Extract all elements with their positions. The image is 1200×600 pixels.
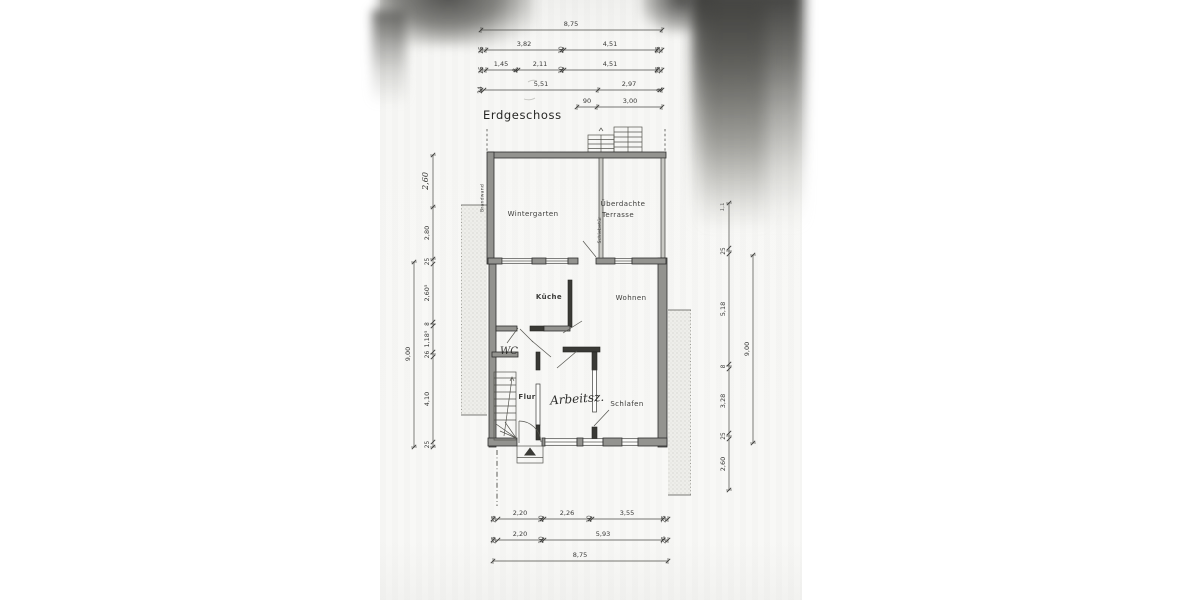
wall-bottom: [638, 438, 667, 446]
dim-label: 2,20: [513, 509, 527, 517]
room-label-wintergarten: Wintergarten: [508, 210, 559, 218]
dim-chain-top-row4: 24 5,51 2,97 9: [478, 80, 664, 94]
wall-bottom: [603, 438, 622, 446]
dim-label: 2,97: [622, 80, 636, 88]
stair-walk-line: [504, 378, 512, 436]
wall-mid-segment: [568, 258, 578, 264]
dim-label: 2,60: [421, 172, 430, 191]
wall-flur: [536, 425, 540, 440]
wall-label-schiebetuer: Schiebetür: [597, 217, 603, 244]
dim-label: 3,00: [623, 97, 637, 105]
scanned-floor-plan-document: 8,75 25 3,82 10 4,51 25 25 1,45 8 2,11 1…: [0, 0, 1200, 600]
room-label-wohnen: Wohnen: [616, 294, 647, 302]
dim-label: 1,1: [720, 202, 726, 212]
dim-chain-left-inner: 2,60 2,80 25 2,60⁵ 8 1,18⁵ 26 4,10 25: [421, 153, 436, 449]
wall-right-terrasse: [661, 158, 665, 258]
dim-label: 10: [559, 66, 565, 74]
wall-bottom: [488, 438, 517, 446]
dim-label: 25: [721, 432, 727, 440]
dim-label: 25: [425, 441, 431, 449]
dim-label: 4,51: [603, 40, 617, 48]
room-label-terrasse-2: Terrasse: [601, 211, 634, 219]
wall-mid-segment: [632, 258, 666, 264]
staircase: [494, 372, 516, 440]
neighbor-wall-strip-right: [668, 310, 691, 495]
dim-chain-top-row5: 90 3,00: [575, 97, 664, 110]
stair-direction-arrow: [599, 128, 603, 131]
dim-label: 2,20: [513, 530, 527, 538]
dim-chain-bottom-total: 8,75: [491, 551, 670, 564]
dim-label: 25: [721, 247, 727, 255]
dim-chain-right-outer: 9,00: [743, 253, 756, 445]
dim-label: 2,26: [560, 509, 574, 517]
dim-label: 10: [539, 515, 545, 523]
dim-label: 9,00: [743, 342, 751, 356]
neighbor-wall-strip-left: [461, 205, 487, 415]
dim-label: 2,11: [533, 60, 547, 68]
floor-plan-drawing: 8,75 25 3,82 10 4,51 25 25 1,45 8 2,11 1…: [0, 0, 1200, 600]
dim-label: 8: [513, 68, 519, 72]
dim-label: 8,75: [564, 20, 578, 28]
wall-kueche-wohnen: [568, 280, 572, 327]
dim-chain-right-inner: 1,1 25 5,18 8 3,28 25 2,60: [719, 201, 732, 492]
wall-left-brandwand: [487, 152, 494, 264]
wall-flur: [536, 384, 540, 425]
dim-label: 24: [478, 86, 484, 94]
dim-label: 2,60: [719, 457, 727, 471]
dim-chain-bottom-row1: 25 2,20 10 2,26 10 3,55 25: [491, 509, 670, 523]
dim-label: 8: [721, 364, 727, 368]
dim-label: 3,28: [719, 394, 727, 408]
dim-label: 26: [662, 536, 668, 544]
dim-label: 10: [559, 46, 565, 54]
entrance-arrow-icon: [524, 448, 536, 456]
dim-label: 1,45: [494, 60, 508, 68]
dim-chain-top-total: 8,75: [479, 20, 664, 33]
room-label-flur: Flur: [518, 393, 535, 401]
dim-label: 25: [479, 66, 485, 74]
dim-chain-top-row2: 25 3,82 10 4,51 25: [479, 40, 664, 54]
dim-label: 25: [492, 536, 498, 544]
dim-label: 9: [657, 88, 663, 92]
door-swings: [507, 241, 609, 443]
wall-schlafen: [592, 427, 597, 440]
wall-flur: [536, 352, 540, 370]
dim-label: 4,10: [423, 392, 431, 406]
room-label-terrasse-1: Überdachte: [601, 199, 646, 208]
wall-mid-segment: [488, 258, 502, 264]
dim-label: 5,51: [534, 80, 548, 88]
pencil-mark: [524, 98, 535, 100]
room-label-schlafen: Schlafen: [610, 400, 643, 408]
dim-label: 90: [583, 97, 591, 105]
wall-bottom: [577, 438, 583, 446]
dim-chain-bottom-row2: 25 2,20 10 5,93 26: [491, 530, 670, 544]
dim-label: 8: [425, 322, 431, 326]
dim-chain-left-outer: 9,00: [404, 260, 417, 449]
dim-label: 4,51: [603, 60, 617, 68]
dim-label: 10: [587, 515, 593, 523]
exterior-stairs: [588, 127, 642, 152]
wall-top: [488, 152, 666, 158]
dim-label: 2,80: [423, 226, 431, 240]
wall-wc-top: [544, 326, 570, 331]
wall-mid-segment: [532, 258, 546, 264]
dim-label: 3,82: [517, 40, 531, 48]
dim-label: 25: [656, 66, 662, 74]
wall-wc-top: [496, 326, 517, 331]
dim-label: 1,18⁵: [423, 330, 431, 347]
wall-schlafen: [592, 352, 597, 370]
dim-label: 5,18: [719, 302, 727, 316]
dim-label: 8,75: [573, 551, 587, 559]
dim-label: 25: [492, 515, 498, 523]
dim-label: 25: [479, 46, 485, 54]
wall-right: [658, 258, 667, 447]
dim-label: 9,00: [404, 347, 412, 361]
page-title: Erdgeschoss: [483, 108, 562, 122]
wall-label-brandwand: Brandwand: [480, 184, 486, 212]
wall-bottom: [542, 438, 545, 446]
room-label-wc: WC: [500, 346, 518, 357]
dim-label: 25: [425, 258, 431, 266]
entrance-porch: [517, 446, 543, 463]
dim-label: 5,93: [596, 530, 610, 538]
room-label-kueche: Küche: [536, 293, 562, 301]
dim-label: 10: [539, 536, 545, 544]
dim-label: 3,55: [620, 509, 634, 517]
dim-label: 25: [656, 46, 662, 54]
dim-label: 2,60⁵: [423, 284, 431, 301]
wall-wohnen-arbeitsz: [563, 347, 600, 352]
dim-chain-top-row3: 25 1,45 8 2,11 10 4,51 25: [479, 60, 664, 74]
dim-label: 25: [662, 515, 668, 523]
wall-wc-top: [530, 326, 544, 331]
dim-label: 26: [425, 351, 431, 359]
wall-mid-segment: [596, 258, 615, 264]
